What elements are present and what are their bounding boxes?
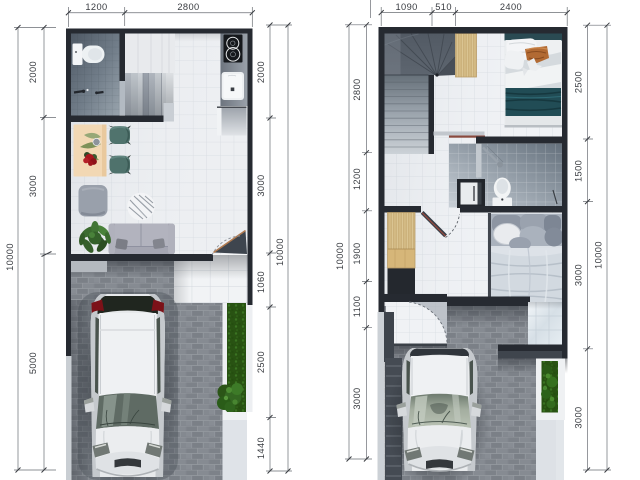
svg-text:2000: 2000 bbox=[28, 61, 38, 83]
svg-text:1090: 1090 bbox=[395, 2, 417, 12]
svg-text:3000: 3000 bbox=[28, 175, 38, 197]
svg-text:10000: 10000 bbox=[335, 242, 345, 270]
svg-text:2000: 2000 bbox=[256, 61, 266, 83]
svg-text:5000: 5000 bbox=[28, 352, 38, 374]
svg-text:1440: 1440 bbox=[256, 437, 266, 459]
svg-text:3000: 3000 bbox=[574, 264, 584, 286]
svg-text:1500: 1500 bbox=[574, 160, 584, 182]
svg-text:2500: 2500 bbox=[574, 71, 584, 93]
svg-text:2800: 2800 bbox=[352, 78, 362, 100]
svg-text:1200: 1200 bbox=[85, 2, 107, 12]
svg-text:510: 510 bbox=[435, 2, 452, 12]
svg-text:10000: 10000 bbox=[5, 243, 15, 271]
svg-text:2800: 2800 bbox=[177, 2, 199, 12]
svg-text:3000: 3000 bbox=[574, 406, 584, 428]
svg-text:1100: 1100 bbox=[352, 296, 362, 318]
svg-text:1200: 1200 bbox=[352, 168, 362, 190]
svg-text:2400: 2400 bbox=[500, 2, 522, 12]
svg-text:1900: 1900 bbox=[352, 242, 362, 264]
svg-text:2500: 2500 bbox=[256, 351, 266, 373]
svg-text:10000: 10000 bbox=[275, 238, 285, 266]
svg-text:3000: 3000 bbox=[256, 174, 266, 196]
svg-text:3000: 3000 bbox=[352, 387, 362, 409]
svg-text:10000: 10000 bbox=[594, 241, 604, 269]
svg-text:1060: 1060 bbox=[256, 271, 266, 293]
